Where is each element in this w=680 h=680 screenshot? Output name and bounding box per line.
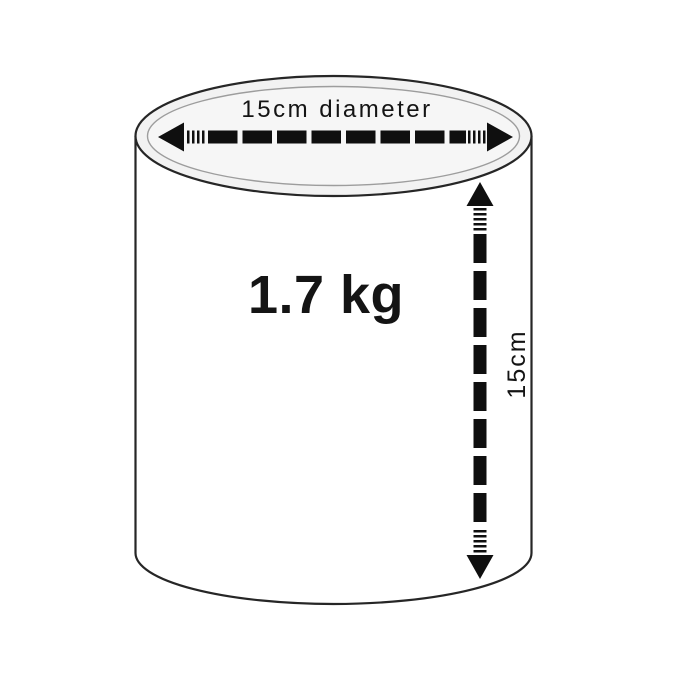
diameter-label: 15cm diameter — [241, 96, 432, 123]
height-label: 15cm — [503, 329, 531, 398]
diagram-svg: 15cm diameter 1.7 kg 15cm — [0, 0, 680, 680]
cylinder-dimension-diagram: 15cm diameter 1.7 kg 15cm — [0, 0, 680, 680]
weight-label: 1.7 kg — [248, 265, 404, 325]
cylinder-body — [136, 136, 532, 604]
